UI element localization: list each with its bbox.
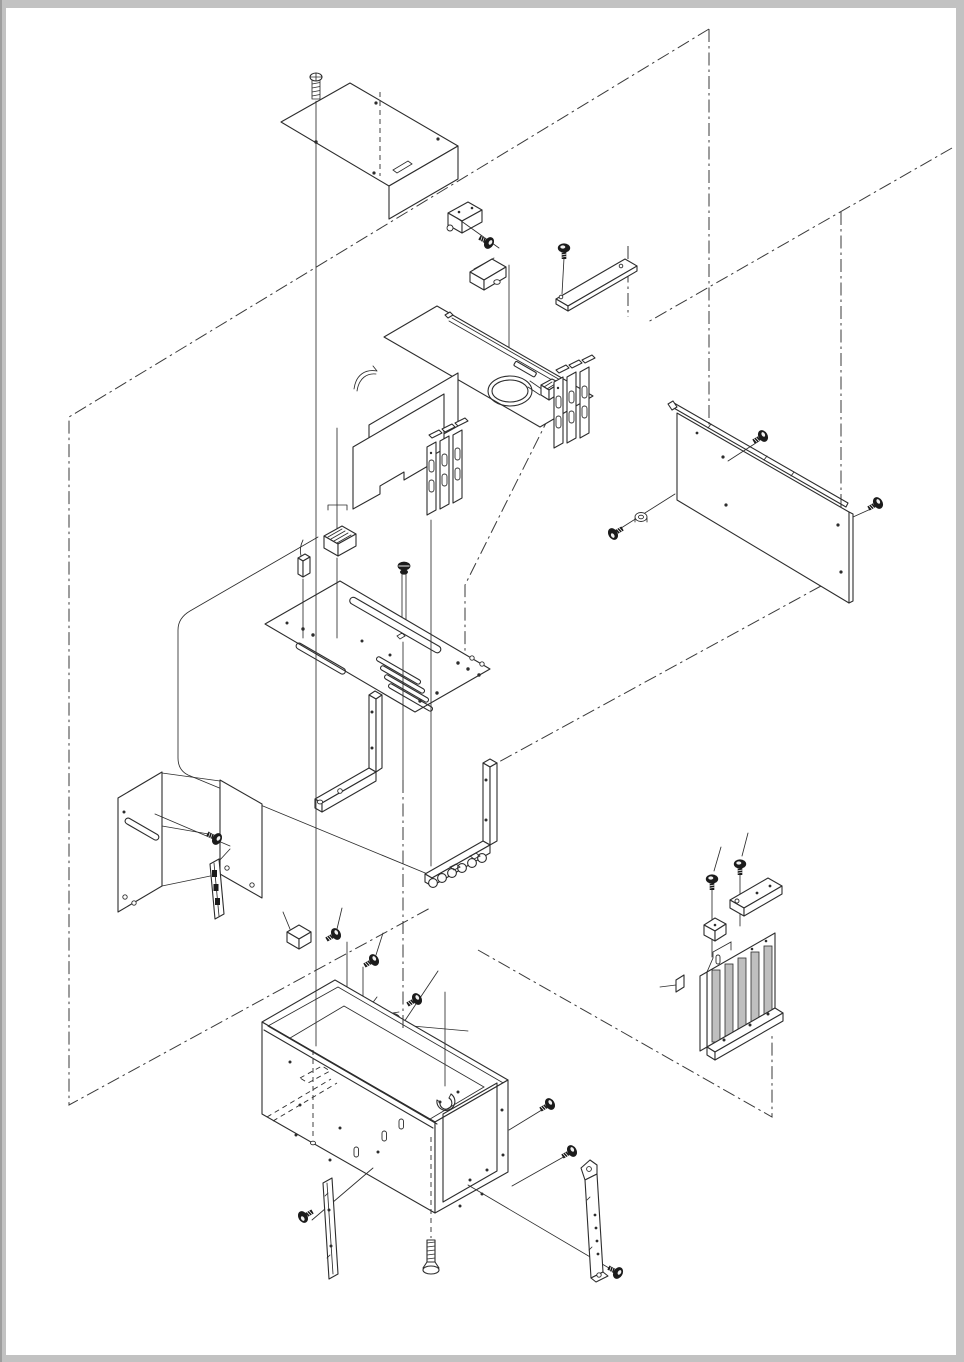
washer — [635, 513, 647, 523]
scanned-page — [0, 0, 964, 1362]
exploded-diagram — [0, 0, 964, 1362]
